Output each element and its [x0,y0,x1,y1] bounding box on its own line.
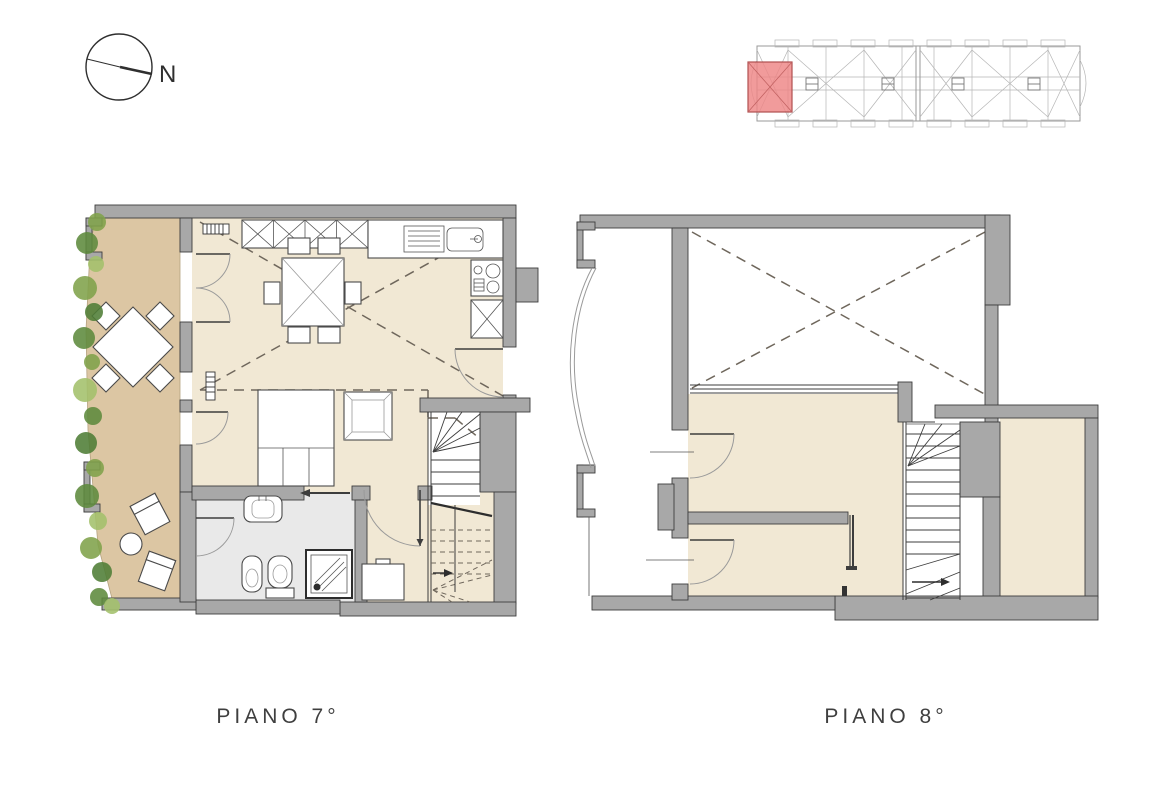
key-plan-outline [757,46,1080,121]
room-upper-floor [688,394,905,512]
door-stop-mark [842,586,847,596]
label-piano-7: PIANO 7° [216,705,339,728]
room-right-floor [1000,418,1085,598]
floor-plan-piano-8 [570,215,1098,620]
kitchen-column-x [471,300,503,338]
north-compass: N [86,34,176,100]
toilet-symbol [266,556,294,598]
north-label: N [159,61,176,88]
washbasin-symbol [244,496,282,522]
hall-cabinet [362,559,404,600]
pouf-table [344,392,392,440]
key-plan [748,40,1086,127]
bidet-symbol [242,556,262,592]
side-table [120,533,142,555]
shower-symbol [306,550,352,598]
compass-needle [87,59,120,67]
floor-plan-piano-7 [73,205,538,616]
void-floor [688,228,985,390]
curved-facade [570,268,596,596]
double-bed-symbol [258,390,334,486]
stove-symbol [471,260,503,296]
room-lower-floor [688,524,905,600]
radiator-bedroom [206,372,215,400]
floor-plan-sheet: N [0,0,1170,785]
key-plan-highlight-unit [748,62,792,112]
radiator-top [203,224,229,234]
room-corridor-floor [848,512,905,524]
stair-upper-floor [428,412,480,505]
compass-needle-tip [120,67,152,74]
label-piano-8: PIANO 8° [824,705,947,728]
